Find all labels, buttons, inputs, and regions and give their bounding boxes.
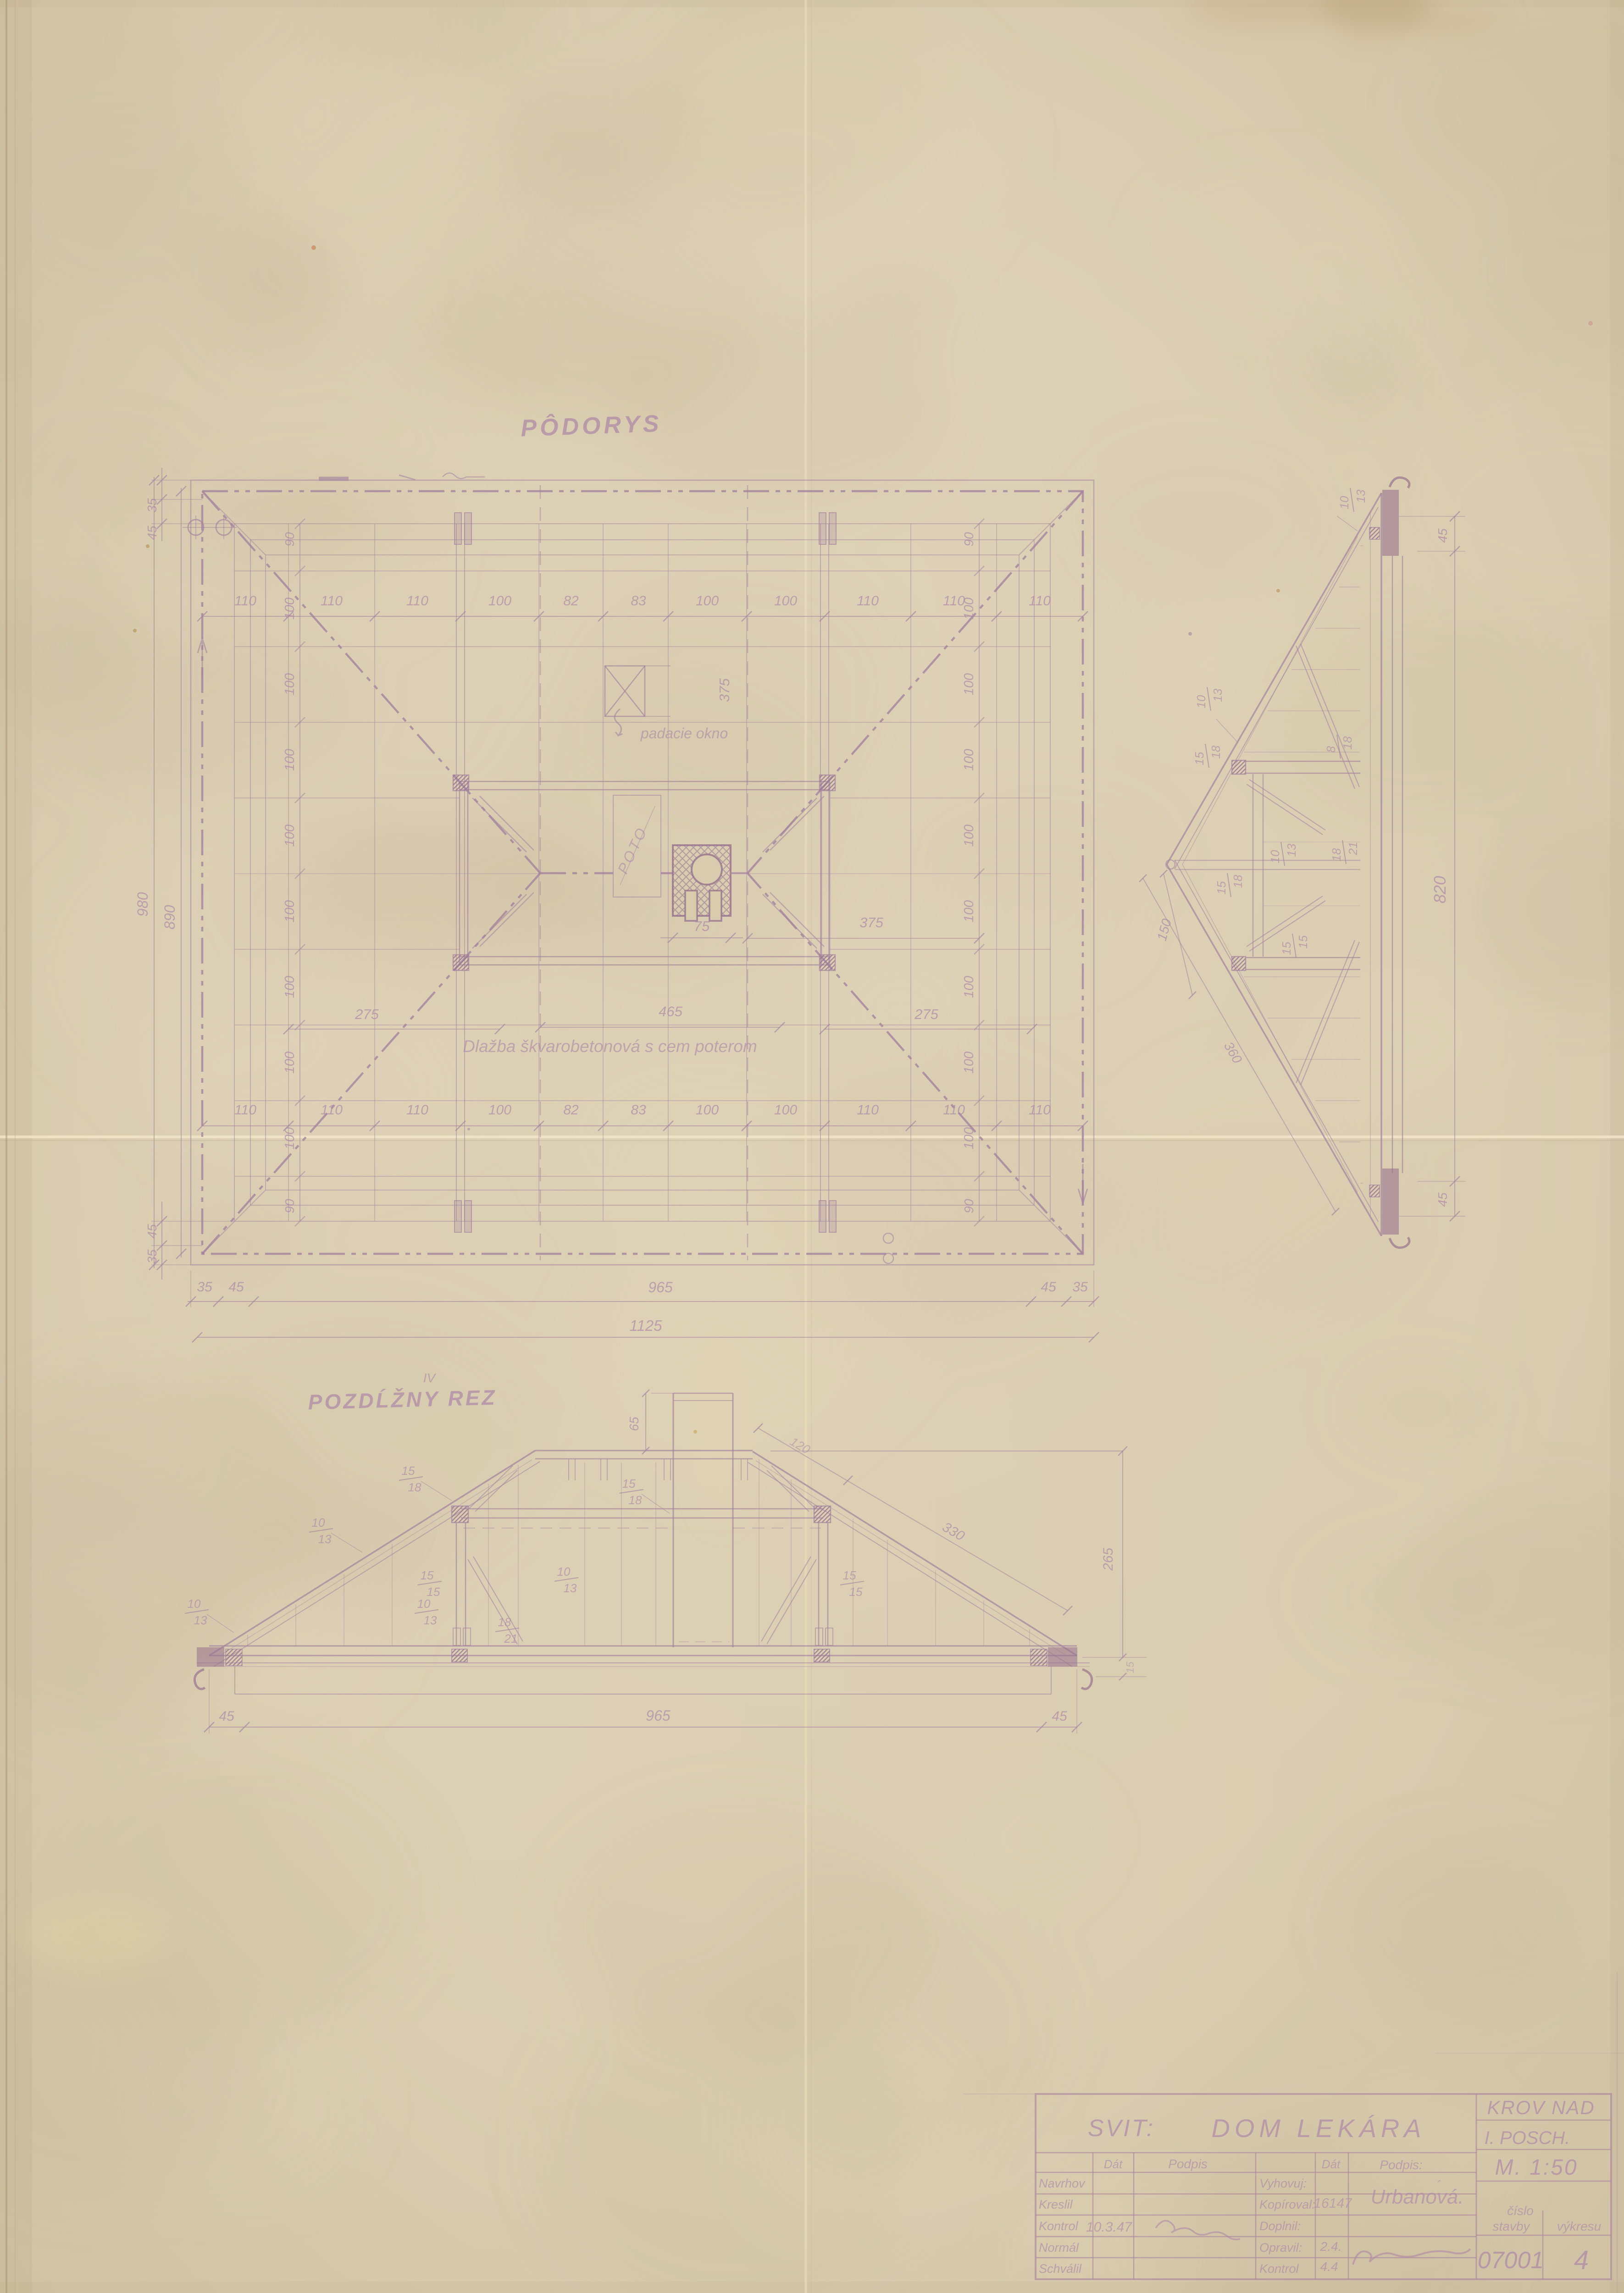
svg-text:13: 13 bbox=[564, 1581, 577, 1595]
svg-text:15: 15 bbox=[843, 1568, 856, 1582]
svg-text:18: 18 bbox=[498, 1615, 511, 1629]
svg-text:100: 100 bbox=[283, 825, 297, 847]
svg-text:83: 83 bbox=[631, 593, 646, 609]
svg-text:100: 100 bbox=[283, 1052, 297, 1074]
svg-text:100: 100 bbox=[283, 749, 297, 771]
svg-text:padacie okno: padacie okno bbox=[640, 725, 728, 742]
svg-text:65: 65 bbox=[627, 1417, 641, 1431]
svg-text:13: 13 bbox=[318, 1532, 332, 1546]
svg-text:I. POSCH.: I. POSCH. bbox=[1485, 2128, 1570, 2148]
svg-text:110: 110 bbox=[857, 593, 879, 609]
svg-text:IV: IV bbox=[423, 1371, 437, 1385]
svg-text:13: 13 bbox=[1211, 688, 1225, 702]
svg-text:100: 100 bbox=[962, 900, 976, 922]
svg-text:275: 275 bbox=[914, 1006, 938, 1022]
svg-text:Podpis: Podpis bbox=[1168, 2157, 1208, 2171]
svg-text:82: 82 bbox=[563, 593, 579, 609]
svg-text:275: 275 bbox=[355, 1006, 379, 1022]
svg-text:100: 100 bbox=[962, 598, 976, 620]
svg-text:100: 100 bbox=[962, 749, 976, 771]
svg-text:18: 18 bbox=[408, 1480, 421, 1494]
svg-text:Schválil: Schválil bbox=[1039, 2262, 1082, 2276]
svg-text:16147: 16147 bbox=[1314, 2196, 1352, 2211]
svg-text:100: 100 bbox=[283, 976, 297, 998]
svg-text:90: 90 bbox=[283, 532, 297, 547]
svg-text:45: 45 bbox=[145, 1224, 159, 1239]
svg-text:100: 100 bbox=[774, 1102, 797, 1118]
svg-text:82: 82 bbox=[563, 1102, 579, 1118]
svg-text:35: 35 bbox=[197, 1279, 212, 1295]
svg-text:100: 100 bbox=[696, 593, 719, 609]
svg-text:45: 45 bbox=[219, 1709, 234, 1724]
svg-text:Kontrol: Kontrol bbox=[1039, 2219, 1079, 2233]
svg-text:10: 10 bbox=[557, 1565, 571, 1579]
svg-text:100: 100 bbox=[962, 673, 976, 695]
svg-text:100: 100 bbox=[488, 1102, 511, 1118]
svg-text:13: 13 bbox=[1285, 843, 1298, 857]
svg-text:Urbanová.: Urbanová. bbox=[1370, 2186, 1463, 2208]
svg-text:Kopíroval:: Kopíroval: bbox=[1259, 2198, 1315, 2211]
svg-text:13: 13 bbox=[1354, 489, 1368, 503]
svg-text:110: 110 bbox=[321, 1102, 343, 1118]
svg-text:07001: 07001 bbox=[1478, 2247, 1544, 2274]
svg-text:820: 820 bbox=[1430, 876, 1449, 903]
svg-text:15: 15 bbox=[849, 1585, 863, 1599]
svg-text:Doplnil:: Doplnil: bbox=[1259, 2219, 1301, 2233]
svg-text:18: 18 bbox=[1231, 875, 1245, 888]
svg-text:15: 15 bbox=[421, 1568, 434, 1582]
svg-text:110: 110 bbox=[406, 1102, 428, 1118]
svg-text:375: 375 bbox=[716, 678, 732, 702]
svg-text:45: 45 bbox=[1436, 1192, 1450, 1207]
svg-text:Kreslil: Kreslil bbox=[1039, 2198, 1073, 2211]
svg-text:100: 100 bbox=[283, 1127, 297, 1149]
svg-text:965: 965 bbox=[648, 1279, 673, 1296]
svg-text:4.4: 4.4 bbox=[1320, 2260, 1338, 2274]
svg-text:100: 100 bbox=[283, 598, 297, 620]
svg-text:100: 100 bbox=[962, 1127, 976, 1149]
svg-text:10.3.47: 10.3.47 bbox=[1086, 2220, 1132, 2235]
svg-text:90: 90 bbox=[962, 532, 976, 547]
svg-text:číslo: číslo bbox=[1507, 2204, 1534, 2218]
svg-text:10: 10 bbox=[188, 1597, 201, 1611]
svg-text:Kontrol: Kontrol bbox=[1259, 2262, 1299, 2276]
svg-text:18: 18 bbox=[1330, 848, 1343, 861]
svg-text:8: 8 bbox=[1324, 746, 1338, 753]
svg-text:90: 90 bbox=[962, 1199, 976, 1213]
svg-text:´: ´ bbox=[1436, 2178, 1441, 2193]
svg-text:1125: 1125 bbox=[630, 1317, 663, 1334]
svg-text:15: 15 bbox=[402, 1464, 415, 1478]
svg-text:110: 110 bbox=[234, 1102, 256, 1118]
svg-text:DOM LEKÁRA: DOM LEKÁRA bbox=[1211, 2114, 1425, 2143]
svg-text:Podpis:: Podpis: bbox=[1380, 2158, 1422, 2172]
svg-text:13: 13 bbox=[424, 1613, 437, 1627]
svg-text:965: 965 bbox=[646, 1707, 671, 1724]
svg-text:Normál: Normál bbox=[1039, 2241, 1079, 2254]
svg-text:M. 1:50: M. 1:50 bbox=[1495, 2155, 1578, 2180]
svg-text:stavby: stavby bbox=[1493, 2219, 1531, 2233]
svg-text:13: 13 bbox=[194, 1613, 207, 1627]
svg-text:100: 100 bbox=[283, 673, 297, 695]
svg-text:110: 110 bbox=[321, 593, 343, 609]
svg-text:45: 45 bbox=[1436, 528, 1450, 543]
svg-text:10: 10 bbox=[1194, 695, 1208, 708]
svg-text:100: 100 bbox=[696, 1102, 719, 1118]
svg-text:35: 35 bbox=[145, 498, 159, 513]
svg-text:21: 21 bbox=[1346, 842, 1360, 856]
svg-text:10: 10 bbox=[1337, 496, 1351, 509]
svg-text:18: 18 bbox=[1209, 745, 1223, 759]
svg-text:90: 90 bbox=[283, 1199, 297, 1213]
svg-text:SVIT:: SVIT: bbox=[1088, 2115, 1155, 2142]
svg-text:110: 110 bbox=[1029, 593, 1051, 609]
svg-text:PÔDORYS: PÔDORYS bbox=[520, 410, 662, 442]
svg-text:18: 18 bbox=[629, 1493, 642, 1507]
svg-text:POZDĹŽNY REZ: POZDĹŽNY REZ bbox=[308, 1385, 497, 1414]
svg-text:KROV NAD: KROV NAD bbox=[1487, 2097, 1595, 2118]
svg-text:110: 110 bbox=[857, 1102, 879, 1118]
svg-text:4: 4 bbox=[1574, 2245, 1589, 2275]
svg-text:21: 21 bbox=[504, 1632, 518, 1645]
svg-text:83: 83 bbox=[631, 1102, 646, 1118]
svg-text:Vyhovuj:: Vyhovuj: bbox=[1259, 2177, 1307, 2190]
svg-text:10: 10 bbox=[1268, 850, 1282, 863]
svg-text:110: 110 bbox=[406, 593, 428, 609]
svg-text:15: 15 bbox=[1296, 935, 1310, 948]
svg-text:15: 15 bbox=[622, 1477, 636, 1490]
svg-text:45: 45 bbox=[1052, 1709, 1067, 1724]
svg-text:15: 15 bbox=[1280, 942, 1293, 955]
svg-text:2.4.: 2.4. bbox=[1320, 2239, 1342, 2254]
svg-text:100: 100 bbox=[283, 900, 297, 922]
svg-text:10: 10 bbox=[417, 1597, 431, 1611]
svg-text:45: 45 bbox=[145, 526, 159, 540]
svg-text:45: 45 bbox=[1041, 1279, 1056, 1295]
svg-text:75: 75 bbox=[694, 918, 710, 934]
svg-text:110: 110 bbox=[1029, 1102, 1051, 1118]
svg-text:15: 15 bbox=[1214, 881, 1228, 894]
svg-text:15: 15 bbox=[1124, 1662, 1136, 1673]
svg-text:Dát: Dát bbox=[1322, 2157, 1341, 2171]
svg-text:Opravil:: Opravil: bbox=[1259, 2241, 1302, 2254]
svg-text:890: 890 bbox=[161, 905, 178, 930]
svg-text:Dlažba škvarobetonová s cem po: Dlažba škvarobetonová s cem poterom bbox=[463, 1037, 757, 1056]
svg-text:Dát: Dát bbox=[1104, 2157, 1123, 2171]
svg-text:10: 10 bbox=[312, 1516, 325, 1529]
svg-text:100: 100 bbox=[962, 825, 976, 847]
svg-text:980: 980 bbox=[134, 892, 151, 917]
svg-text:100: 100 bbox=[962, 976, 976, 998]
svg-text:465: 465 bbox=[659, 1003, 682, 1019]
svg-text:375: 375 bbox=[859, 914, 883, 930]
svg-text:100: 100 bbox=[774, 593, 797, 609]
svg-text:100: 100 bbox=[488, 593, 511, 609]
svg-text:265: 265 bbox=[1101, 1548, 1116, 1571]
svg-text:45: 45 bbox=[228, 1279, 244, 1295]
svg-text:35: 35 bbox=[1072, 1279, 1088, 1295]
svg-text:18: 18 bbox=[1341, 736, 1354, 749]
svg-text:výkresu: výkresu bbox=[1557, 2219, 1602, 2233]
svg-text:110: 110 bbox=[234, 593, 256, 609]
svg-text:Navrhov: Navrhov bbox=[1039, 2177, 1086, 2190]
svg-text:100: 100 bbox=[962, 1052, 976, 1074]
svg-text:15: 15 bbox=[1192, 752, 1206, 765]
svg-text:110: 110 bbox=[943, 1102, 965, 1118]
